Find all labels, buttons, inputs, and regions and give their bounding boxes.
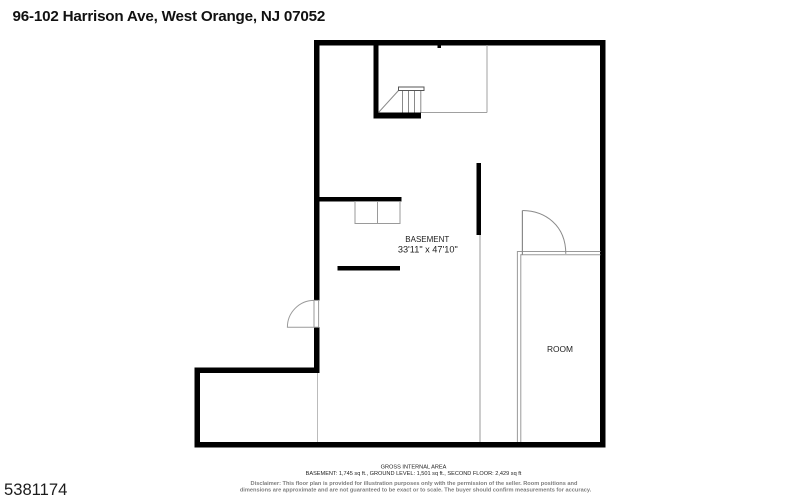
svg-text:Disclaimer: This floor plan is: Disclaimer: This floor plan is provided … bbox=[251, 481, 578, 487]
svg-text:BASEMENT: BASEMENT bbox=[405, 235, 449, 244]
svg-text:5381174: 5381174 bbox=[4, 480, 67, 499]
svg-text:GROSS INTERNAL AREA: GROSS INTERNAL AREA bbox=[381, 464, 447, 470]
svg-text:dimensions are approximate and: dimensions are approximate and are not g… bbox=[240, 487, 592, 493]
svg-text:BASEMENT: 1,745 sq ft., GROUND: BASEMENT: 1,745 sq ft., GROUND LEVEL: 1,… bbox=[306, 471, 522, 477]
svg-text:96-102 Harrison Ave, West Oran: 96-102 Harrison Ave, West Orange, NJ 070… bbox=[13, 8, 326, 25]
svg-text:ROOM: ROOM bbox=[547, 344, 573, 354]
svg-text:33'11" x 47'10": 33'11" x 47'10" bbox=[398, 244, 458, 254]
